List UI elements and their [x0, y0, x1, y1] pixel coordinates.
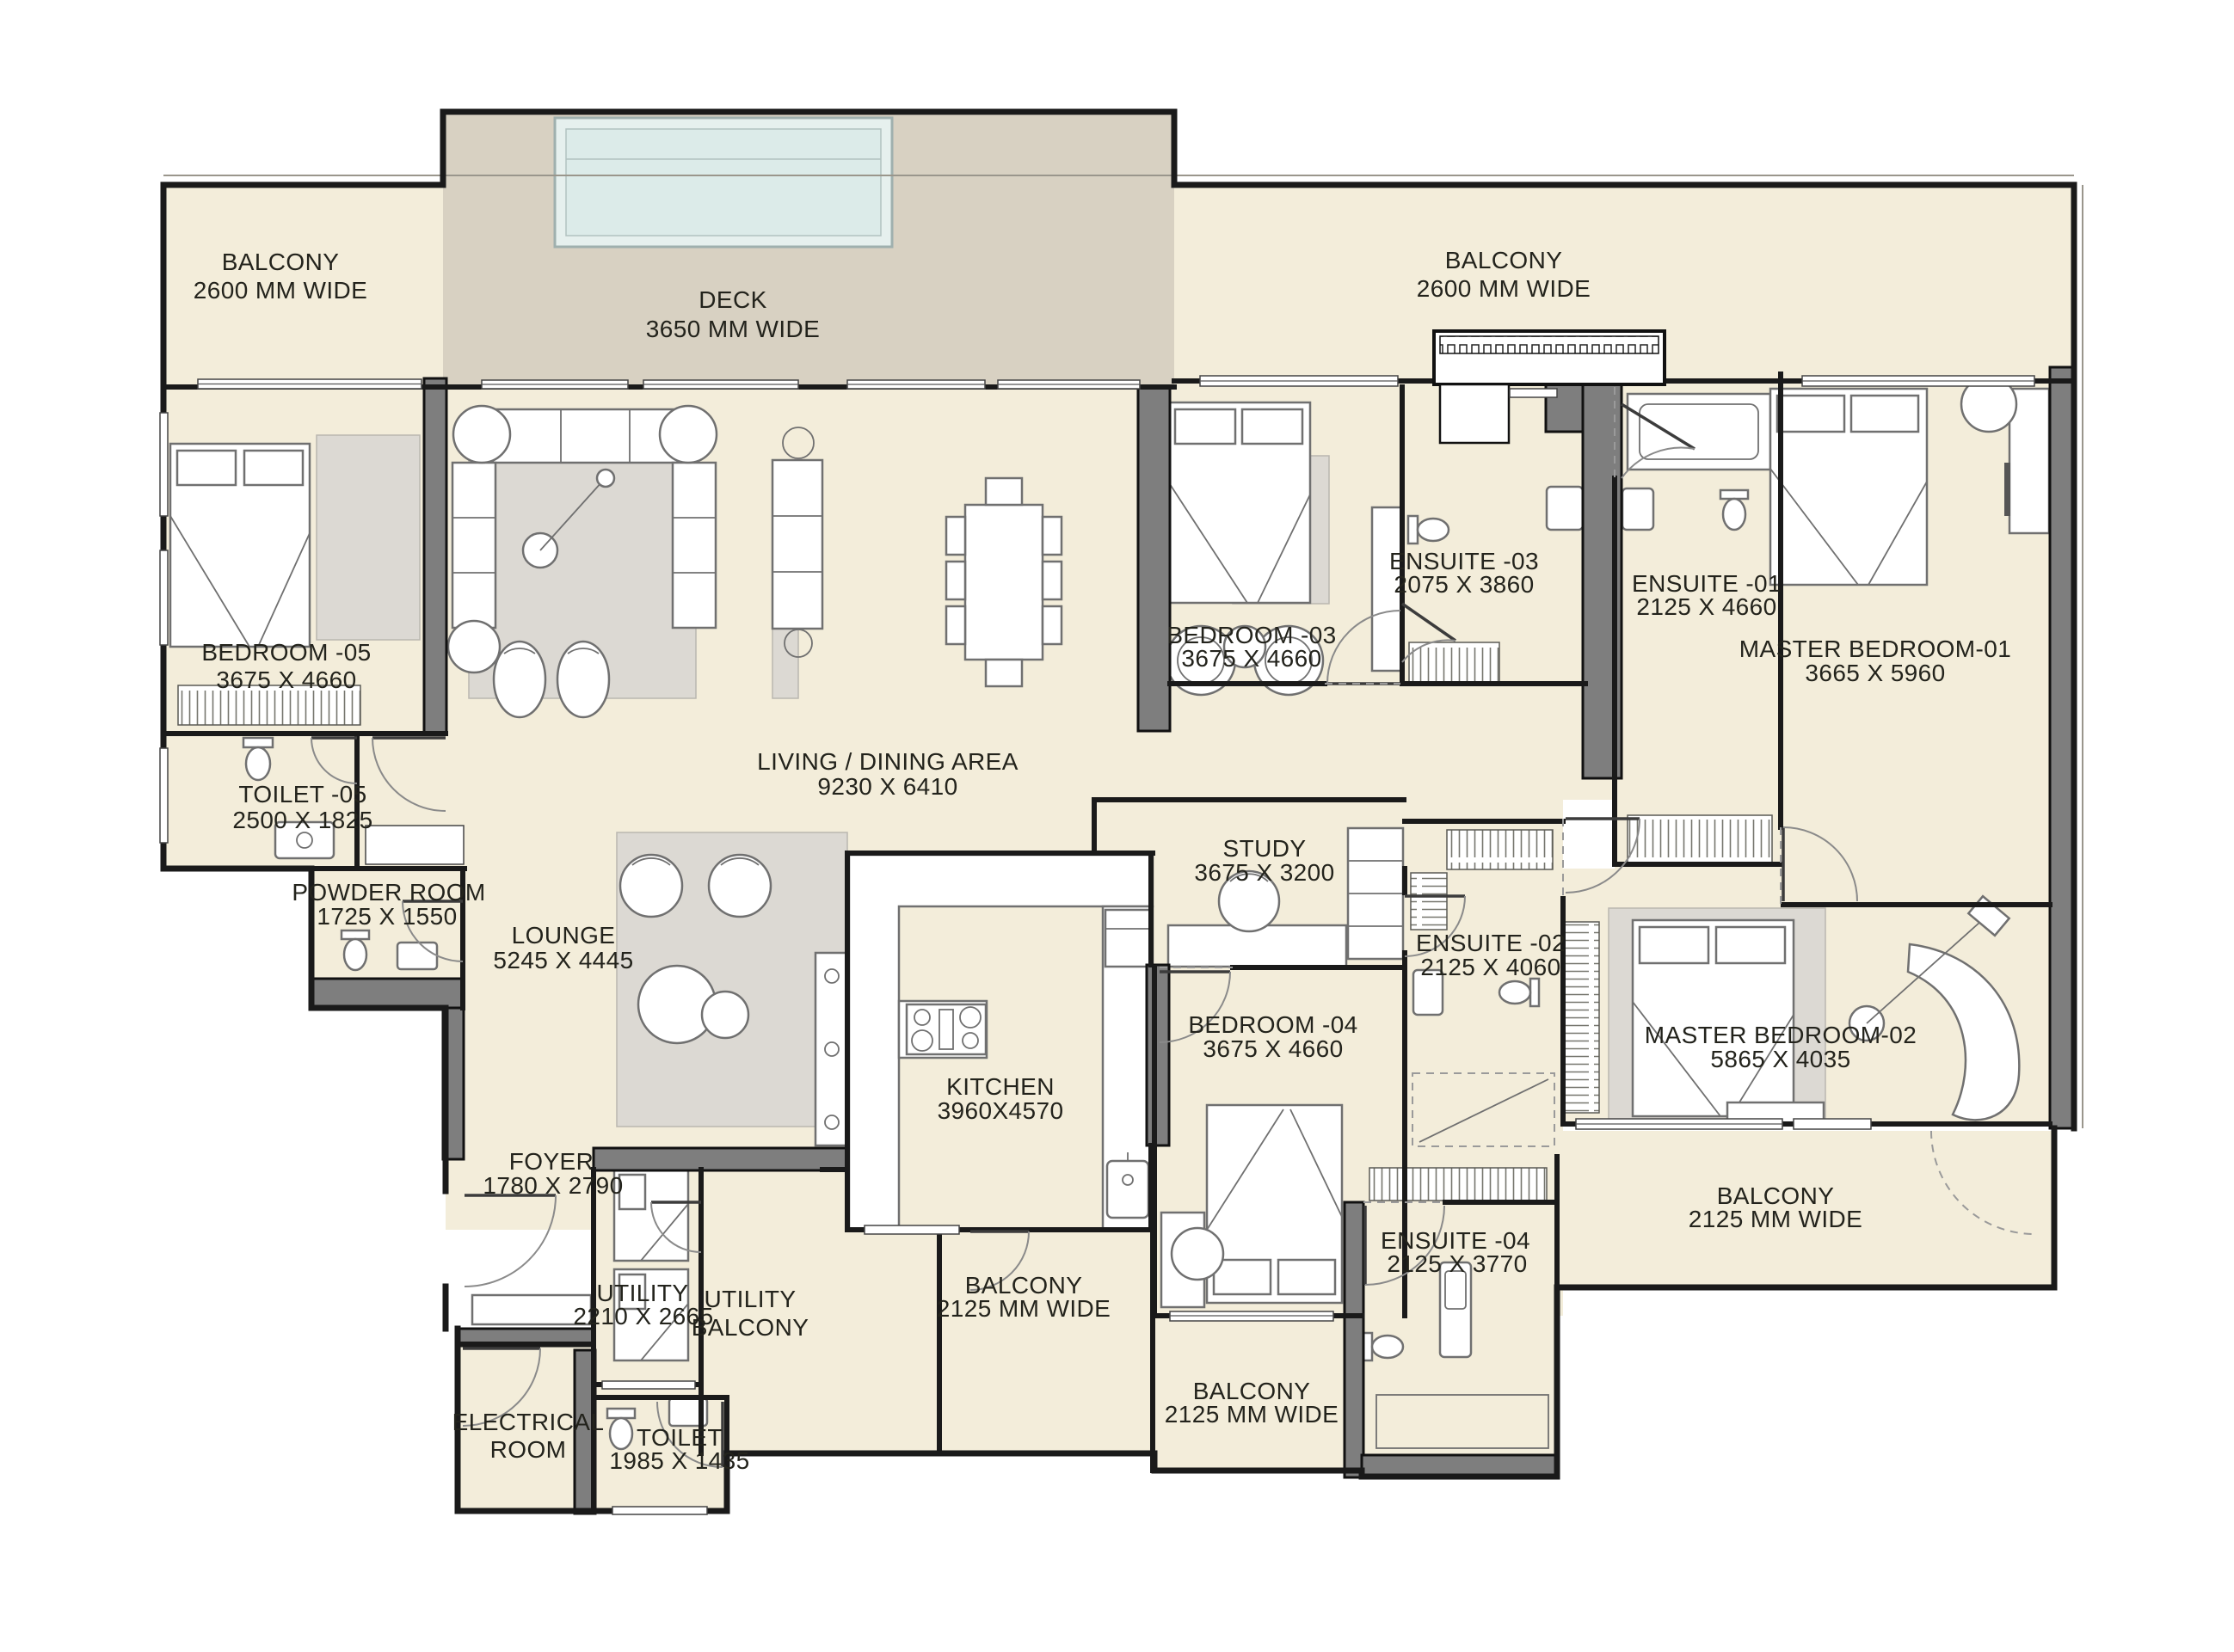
shower-ensuite01 [1628, 394, 1770, 470]
shelf-ensuite02 [1411, 873, 1447, 930]
floor-plan: BALCONY 2600 MM WIDE DECK 3650 MM WIDE B… [0, 0, 2234, 1652]
wardrobe-hatch-ensuite02 [1447, 830, 1553, 869]
stove-icon [907, 1004, 986, 1054]
label-deck: DECK [699, 286, 766, 313]
svg-text:BALCONY: BALCONY [692, 1314, 809, 1341]
svg-text:5245 X 4445: 5245 X 4445 [493, 947, 633, 973]
wardrobe-hatch-ensuite03 [1409, 642, 1499, 682]
svg-text:3675 X 4660: 3675 X 4660 [1203, 1035, 1343, 1062]
floor-areas [163, 112, 2074, 1511]
svg-text:2600 MM WIDE: 2600 MM WIDE [1417, 275, 1591, 302]
svg-text:2075 X 3860: 2075 X 3860 [1394, 571, 1534, 598]
label-lounge: LOUNGE [512, 922, 616, 949]
svg-text:3665 X 5960: 3665 X 5960 [1805, 660, 1945, 686]
label-master-bedroom-01: MASTER BEDROOM-01 [1739, 636, 2011, 662]
sink-icon-ensuite01 [1622, 488, 1653, 530]
svg-text:2125 X 4660: 2125 X 4660 [1636, 593, 1776, 620]
tv-master01 [2004, 463, 2010, 516]
toilet-icon-ensuite02 [1499, 979, 1539, 1006]
svg-text:2125 MM WIDE: 2125 MM WIDE [1689, 1206, 1862, 1232]
label-study: STUDY [1223, 835, 1307, 862]
toilet-icon-ensuite04 [1363, 1333, 1403, 1360]
sink-icon-powder [397, 943, 437, 969]
toilet-icon-powder [342, 930, 369, 970]
label-electrical-room: ELECTRICAL [452, 1409, 605, 1435]
label-balcony-top-left: BALCONY [222, 249, 340, 275]
wardrobe-hatch-ensuite04 [1369, 1168, 1547, 1201]
pool [555, 118, 892, 247]
bed-icon-master02 [1633, 920, 1794, 1116]
chair-bedroom04 [1172, 1228, 1223, 1280]
svg-text:1725 X 1550: 1725 X 1550 [317, 903, 457, 930]
label-bedroom-04: BEDROOM -04 [1188, 1011, 1357, 1038]
svg-text:2500 X 1825: 2500 X 1825 [232, 807, 372, 833]
label-living-dining: LIVING / DINING AREA [757, 748, 1019, 775]
label-bedroom-05: BEDROOM -05 [201, 639, 371, 666]
svg-text:3675 X 4660: 3675 X 4660 [1181, 645, 1321, 672]
svg-text:2600 MM WIDE: 2600 MM WIDE [194, 277, 367, 304]
sink-icon-ensuite03 [1547, 487, 1583, 530]
floor-plan-svg: BALCONY 2600 MM WIDE DECK 3650 MM WIDE B… [0, 0, 2234, 1652]
svg-text:1985 X 1435: 1985 X 1435 [609, 1447, 749, 1474]
label-balcony-top-right: BALCONY [1445, 247, 1563, 273]
label-toilet-05: TOILET -05 [238, 781, 366, 808]
svg-text:3960X4570: 3960X4570 [938, 1097, 1064, 1124]
bed-icon-bedroom04 [1207, 1105, 1342, 1303]
svg-text:2125 MM WIDE: 2125 MM WIDE [1165, 1401, 1339, 1428]
toilet-icon-ensuite03 [1408, 516, 1449, 544]
bed-icon-master01 [1770, 389, 1927, 585]
label-utility-balcony: UTILITY [704, 1286, 796, 1312]
svg-text:3650 MM WIDE: 3650 MM WIDE [646, 316, 820, 342]
svg-text:5865 X 4035: 5865 X 4035 [1710, 1046, 1850, 1072]
bed-icon-bedroom05 [170, 444, 310, 647]
svg-text:2125 X 4060: 2125 X 4060 [1420, 954, 1560, 980]
wardrobe-hatch-ensuite01 [1628, 815, 1772, 863]
wardrobe-hatch-master02 [1565, 922, 1599, 1113]
bed-icon-bedroom03 [1168, 402, 1310, 603]
label-ensuite-02: ENSUITE -02 [1416, 930, 1566, 956]
label-master-bedroom-02: MASTER BEDROOM-02 [1645, 1022, 1917, 1048]
toilet-icon-ensuite01 [1720, 490, 1748, 530]
sofa-icon-dining-side [772, 427, 822, 657]
fridge-icon [1105, 910, 1150, 967]
label-foyer: FOYER [509, 1148, 594, 1175]
svg-text:2125 X 3770: 2125 X 3770 [1387, 1250, 1527, 1277]
svg-text:2125 MM WIDE: 2125 MM WIDE [937, 1295, 1111, 1322]
label-powder-room: POWDER ROOM [292, 879, 485, 906]
toilet-icon-toiletb [607, 1409, 635, 1449]
svg-text:3675 X 3200: 3675 X 3200 [1194, 859, 1334, 886]
label-kitchen: KITCHEN [946, 1073, 1055, 1100]
kitchen-sink-icon [1107, 1152, 1148, 1218]
toilet-icon-toilet05 [243, 738, 273, 780]
svg-text:ROOM: ROOM [490, 1436, 567, 1463]
svg-text:9230 X 6410: 9230 X 6410 [817, 773, 957, 800]
svg-text:1780 X 2790: 1780 X 2790 [483, 1172, 623, 1199]
svg-text:3675 X 4660: 3675 X 4660 [216, 666, 356, 693]
